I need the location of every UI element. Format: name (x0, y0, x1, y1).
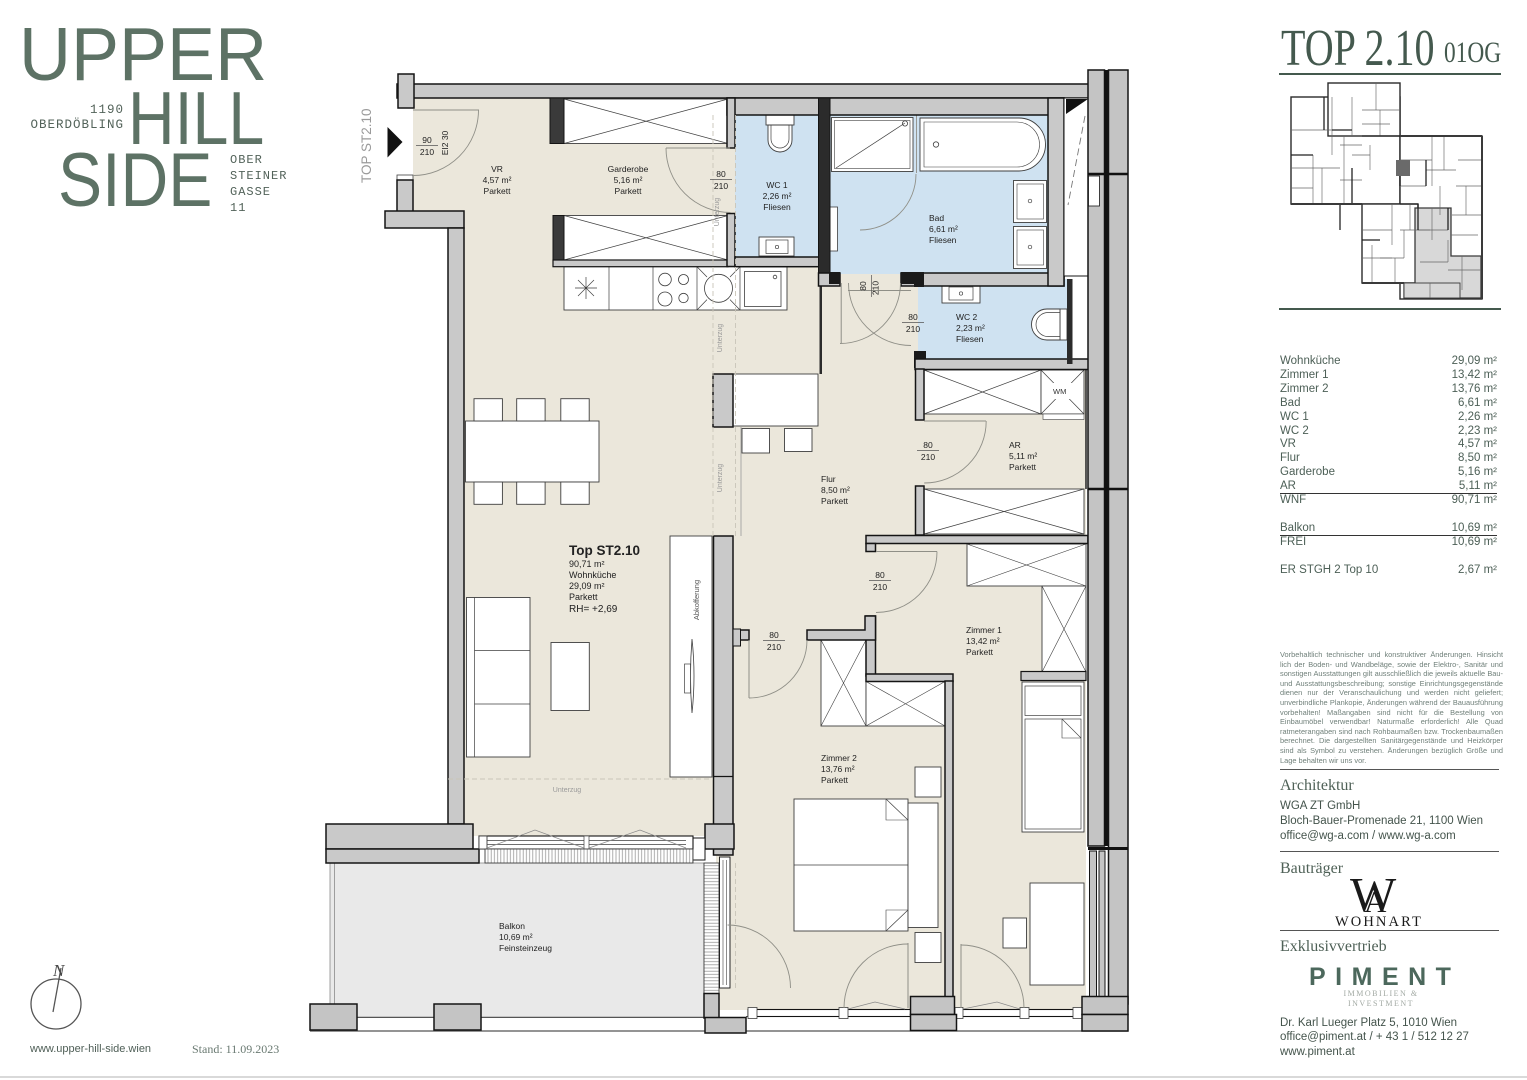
svg-text:Parkett: Parkett (821, 775, 849, 785)
svg-text:5,11 m²: 5,11 m² (1009, 451, 1037, 461)
svg-text:WM: WM (1053, 387, 1066, 396)
svg-text:6,61 m²: 6,61 m² (929, 224, 958, 234)
svg-text:210: 210 (871, 281, 881, 295)
svg-text:Unterzug: Unterzug (714, 198, 721, 227)
svg-text:80: 80 (769, 630, 779, 640)
svg-text:13,76 m²: 13,76 m² (821, 764, 855, 774)
svg-text:Parkett: Parkett (615, 186, 643, 196)
svg-text:2,26 m²: 2,26 m² (763, 191, 792, 201)
svg-text:80: 80 (923, 440, 933, 450)
svg-text:Parkett: Parkett (1009, 462, 1037, 472)
svg-text:Fliesen: Fliesen (956, 334, 984, 344)
svg-text:210: 210 (420, 147, 434, 157)
svg-text:VR: VR (491, 164, 503, 174)
svg-text:Garderobe: Garderobe (608, 164, 649, 174)
svg-text:Parkett: Parkett (484, 186, 512, 196)
svg-text:Flur: Flur (821, 474, 836, 484)
svg-text:Zimmer 1: Zimmer 1 (966, 625, 1002, 635)
svg-text:210: 210 (906, 324, 920, 334)
svg-text:Balkon: Balkon (499, 921, 525, 931)
svg-text:29,09 m²: 29,09 m² (569, 581, 605, 591)
svg-text:Top ST2.10: Top ST2.10 (569, 543, 640, 558)
svg-text:Fliesen: Fliesen (929, 235, 957, 245)
svg-text:Feinsteinzeug: Feinsteinzeug (499, 943, 552, 953)
svg-text:Unterzug: Unterzug (553, 787, 582, 794)
svg-text:WC 1: WC 1 (766, 180, 788, 190)
svg-text:10,69 m²: 10,69 m² (499, 932, 533, 942)
svg-text:Unterzug: Unterzug (717, 324, 724, 353)
svg-text:RH= +2,69: RH= +2,69 (569, 604, 618, 615)
svg-text:4,57 m²: 4,57 m² (483, 175, 512, 185)
svg-text:210: 210 (921, 452, 935, 462)
svg-text:Zimmer 2: Zimmer 2 (821, 753, 857, 763)
svg-text:Parkett: Parkett (821, 496, 849, 506)
svg-text:Parkett: Parkett (569, 592, 598, 602)
svg-text:Unterzug: Unterzug (717, 464, 724, 493)
svg-text:2,23 m²: 2,23 m² (956, 323, 985, 333)
svg-text:5,16 m²: 5,16 m² (614, 175, 643, 185)
svg-text:Wohnküche: Wohnküche (569, 570, 616, 580)
svg-text:Bad: Bad (929, 213, 944, 223)
svg-text:210: 210 (873, 582, 887, 592)
svg-text:8,50 m²: 8,50 m² (821, 485, 850, 495)
svg-text:80: 80 (858, 281, 868, 291)
svg-text:TOP ST2.10: TOP ST2.10 (359, 108, 374, 183)
svg-text:210: 210 (767, 642, 781, 652)
svg-text:80: 80 (875, 570, 885, 580)
svg-text:Fliesen: Fliesen (763, 202, 791, 212)
svg-text:13,42 m²: 13,42 m² (966, 636, 1000, 646)
svg-text:AR: AR (1009, 440, 1021, 450)
svg-text:WC 2: WC 2 (956, 312, 978, 322)
svg-text:210: 210 (714, 181, 728, 191)
svg-text:80: 80 (908, 312, 918, 322)
svg-text:90,71 m²: 90,71 m² (569, 559, 605, 569)
svg-text:EI2 30: EI2 30 (440, 130, 450, 155)
svg-text:Parkett: Parkett (966, 647, 994, 657)
svg-text:Abkofferung: Abkofferung (692, 580, 701, 620)
svg-text:90: 90 (422, 135, 432, 145)
svg-text:80: 80 (716, 169, 726, 179)
